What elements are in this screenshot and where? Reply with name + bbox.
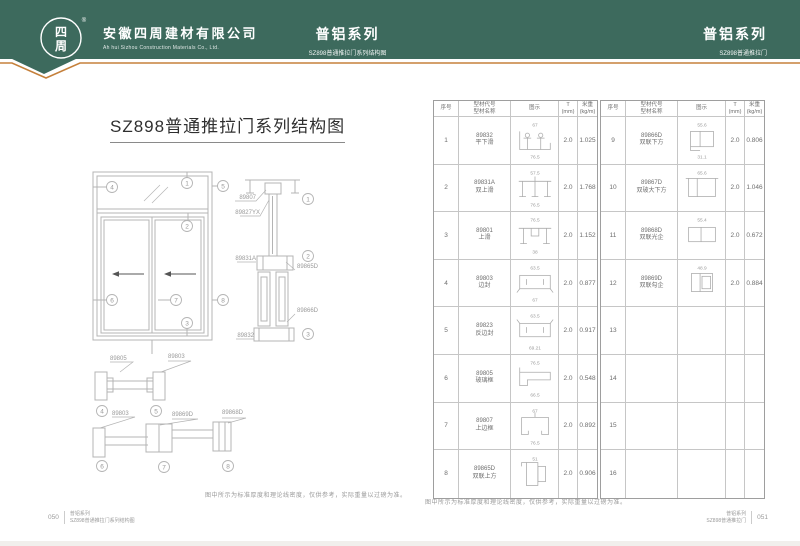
- profile-id-cell: [626, 403, 678, 450]
- part-label: 89868D: [222, 410, 244, 416]
- profile-diagram-cell: 55.631.1: [678, 117, 726, 164]
- svg-text:66.5: 66.5: [530, 393, 540, 399]
- weight-cell: 1.025: [578, 117, 597, 164]
- svg-text:55.6: 55.6: [697, 123, 707, 129]
- svg-text:7: 7: [174, 297, 178, 304]
- profile-code: 89869D: [641, 276, 662, 284]
- weight-cell: [745, 355, 764, 402]
- weight-cell: 0.672: [745, 212, 764, 259]
- svg-text:2: 2: [185, 223, 189, 230]
- row-index: 15: [601, 403, 626, 450]
- left-page-note: 图中所示为标准厚度和理论线密度，仅供参考，实际重量以过磅为准。: [205, 490, 407, 499]
- svg-text:1: 1: [185, 180, 189, 187]
- section-mark: 4: [97, 406, 108, 417]
- col-header-diagram: 图示: [511, 101, 559, 116]
- right-page-note: 图中所示为标准厚度和理论线密度，仅供参考，实际重量以过磅为准。: [425, 497, 627, 506]
- table-row: 689805玻璃框76.566.52.00.548: [434, 355, 597, 403]
- header-series-right: 普铝系列 SZ898普通推拉门: [703, 24, 767, 57]
- svg-text:69.21: 69.21: [529, 345, 541, 351]
- section-mark: 8: [223, 461, 234, 472]
- profile-id-cell: 89807上边框: [459, 403, 511, 450]
- row-index: 13: [601, 307, 626, 354]
- col-header-code: 型材代号型材名称: [626, 101, 678, 116]
- svg-text:5: 5: [154, 408, 158, 415]
- thickness-cell: 2.0: [726, 165, 745, 212]
- svg-text:四: 四: [55, 25, 67, 39]
- weight-cell: 0.877: [578, 260, 597, 307]
- table-row: 16: [601, 450, 764, 498]
- row-index: 10: [601, 165, 626, 212]
- profile-code: 89823: [476, 323, 493, 331]
- row-index: 12: [601, 260, 626, 307]
- profile-code: 89865D: [474, 466, 495, 474]
- footer-divider: [64, 511, 65, 524]
- profile-diagram-cell: 6776.5: [511, 117, 559, 164]
- profile-cross-section: 76.538: [512, 214, 558, 256]
- thickness-cell: [726, 403, 745, 450]
- profile-diagram-cell: 6776.5: [511, 403, 559, 450]
- weight-cell: 0.806: [745, 117, 764, 164]
- slide-arrow-icon: [112, 271, 119, 277]
- profile-diagram-cell: [678, 307, 726, 354]
- profile-code: 89867D: [641, 180, 662, 188]
- profile-code: 89807: [476, 418, 493, 426]
- company-name-en: Ah hui Sizhou Construction Materials Co.…: [103, 45, 258, 51]
- section-mark: 1: [182, 178, 193, 189]
- accent-line: [0, 63, 800, 78]
- thickness-cell: 2.0: [559, 450, 578, 498]
- table-row: 14: [601, 355, 764, 403]
- svg-text:7: 7: [162, 464, 166, 471]
- svg-text:38: 38: [532, 250, 538, 256]
- svg-text:57.5: 57.5: [530, 171, 540, 177]
- series-subtitle-right: SZ898普通推拉门: [703, 48, 767, 57]
- svg-text:3: 3: [306, 331, 310, 338]
- section-mark: 8: [218, 295, 229, 306]
- profile-cross-section: 6776.5: [512, 405, 558, 447]
- row-index: 5: [434, 307, 459, 354]
- svg-text:1: 1: [306, 196, 310, 203]
- table-row: 1089867D双玻大下方65.62.01.046: [601, 165, 764, 213]
- row-index: 2: [434, 165, 459, 212]
- section-mark: 6: [107, 295, 118, 306]
- svg-text:63.5: 63.5: [530, 266, 540, 272]
- weight-cell: 0.917: [578, 307, 597, 354]
- profile-diagram-cell: 63.567: [511, 260, 559, 307]
- profile-name: 边封: [478, 283, 490, 291]
- thickness-cell: 2.0: [559, 212, 578, 259]
- table-row: 15: [601, 403, 764, 451]
- page-title: SZ898普通推拉门系列结构图: [110, 112, 345, 143]
- section-mark: 3: [182, 318, 193, 329]
- profile-cross-section: 76.566.5: [512, 357, 558, 399]
- profile-id-cell: 89831A双上滑: [459, 165, 511, 212]
- registered-mark-icon: ®: [82, 17, 87, 24]
- col-header-weight: 米重(kg/m): [745, 101, 764, 116]
- profile-name: 玻璃框: [475, 378, 493, 386]
- weight-cell: [745, 307, 764, 354]
- table-row: 789807上边框6776.52.00.892: [434, 403, 597, 451]
- profile-diagram-cell: 65.6: [678, 165, 726, 212]
- weight-cell: 0.906: [578, 450, 597, 498]
- footer-divider: [751, 511, 752, 524]
- thickness-cell: 2.0: [559, 260, 578, 307]
- weight-cell: 1.152: [578, 212, 597, 259]
- table-row: 989866D双联下方55.631.12.00.806: [601, 117, 764, 165]
- part-label: 89803: [168, 354, 185, 360]
- thickness-cell: 2.0: [559, 403, 578, 450]
- svg-text:67: 67: [532, 123, 538, 129]
- col-header-diagram: 图示: [678, 101, 726, 116]
- right-page-footer: 普铝系列 SZ898普通推拉门 051: [706, 511, 768, 524]
- svg-text:76.5: 76.5: [530, 203, 540, 209]
- profile-id-cell: 89868D双联光企: [626, 212, 678, 259]
- part-label: 89869D: [172, 412, 194, 418]
- company-block: 安徽四周建材有限公司 Ah hui Sizhou Construction Ma…: [103, 23, 258, 51]
- profile-cross-section: 63.569.21: [512, 310, 558, 352]
- table-row: 189832平下滑6776.52.01.025: [434, 117, 597, 165]
- col-header-thickness: T(mm): [559, 101, 578, 116]
- footer-doc: SZ898普通推拉门系列结构图: [70, 518, 135, 525]
- row-index: 4: [434, 260, 459, 307]
- profile-id-cell: [626, 355, 678, 402]
- part-label: 89866D: [297, 308, 319, 314]
- row-index: 9: [601, 117, 626, 164]
- table-row: 1189868D双联光企55.42.00.672: [601, 212, 764, 260]
- profile-diagram-cell: 48.9: [678, 260, 726, 307]
- svg-text:4: 4: [110, 184, 114, 191]
- row-index: 14: [601, 355, 626, 402]
- weight-cell: [745, 450, 764, 498]
- table-row: 589823反边封63.569.212.00.917: [434, 307, 597, 355]
- profile-name: 双联下方: [639, 140, 663, 148]
- page-number: 050: [48, 514, 59, 521]
- profile-name: 双联勾企: [639, 283, 663, 291]
- profile-id-cell: [626, 450, 678, 498]
- profile-diagram-cell: 76.566.5: [511, 355, 559, 402]
- svg-text:周: 周: [55, 39, 67, 53]
- profile-id-cell: 89867D双玻大下方: [626, 165, 678, 212]
- profile-name: 上滑: [478, 235, 490, 243]
- profile-diagram-cell: 57.576.5: [511, 165, 559, 212]
- section-mark: 2: [182, 221, 193, 232]
- svg-text:76.5: 76.5: [530, 218, 540, 224]
- part-label: 89827YX: [235, 210, 260, 216]
- profile-diagram-cell: 51: [511, 450, 559, 498]
- profile-code: 89831A: [474, 180, 495, 188]
- profile-id-cell: 89832平下滑: [459, 117, 511, 164]
- svg-text:63.5: 63.5: [530, 313, 540, 319]
- profile-name: 双联上方: [472, 474, 496, 482]
- weight-cell: [745, 403, 764, 450]
- section-mark: 7: [171, 295, 182, 306]
- section-mark: 4: [107, 182, 118, 193]
- profile-diagram-cell: [678, 355, 726, 402]
- table-row: 1289869D双联勾企48.92.00.884: [601, 260, 764, 308]
- section-mark: 5: [151, 406, 162, 417]
- left-page-footer: 050 普铝系列 SZ898普通推拉门系列结构图: [48, 511, 135, 524]
- svg-text:4: 4: [100, 408, 104, 415]
- table-header-row: 序号型材代号型材名称图示T(mm)米重(kg/m): [434, 101, 597, 117]
- svg-text:51: 51: [532, 457, 538, 463]
- profile-name: 双上滑: [475, 188, 493, 196]
- thickness-cell: 2.0: [559, 117, 578, 164]
- table-row: 13: [601, 307, 764, 355]
- thickness-cell: [726, 450, 745, 498]
- col-header-weight: 米重(kg/m): [578, 101, 597, 116]
- series-subtitle: SZ898普通推拉门系列结构图: [240, 48, 455, 57]
- table-row: 889865D双联上方512.00.906: [434, 450, 597, 498]
- profile-diagram-cell: 55.4: [678, 212, 726, 259]
- profile-id-cell: 89803边封: [459, 260, 511, 307]
- svg-text:55.4: 55.4: [697, 218, 707, 224]
- svg-text:8: 8: [221, 297, 225, 304]
- svg-text:31.1: 31.1: [697, 155, 707, 161]
- section-mark: 7: [159, 462, 170, 473]
- col-header-thickness: T(mm): [726, 101, 745, 116]
- col-header-no: 序号: [601, 101, 626, 116]
- thickness-cell: [726, 355, 745, 402]
- profile-name: 反边封: [475, 331, 493, 339]
- profile-table-right: 序号型材代号型材名称图示T(mm)米重(kg/m)989866D双联下方55.6…: [600, 100, 765, 499]
- profile-table-left: 序号型材代号型材名称图示T(mm)米重(kg/m)189832平下滑6776.5…: [433, 100, 598, 499]
- profile-id-cell: 89869D双联勾企: [626, 260, 678, 307]
- profile-id-cell: 89823反边封: [459, 307, 511, 354]
- svg-text:76.5: 76.5: [530, 440, 540, 446]
- profile-code: 89803: [476, 276, 493, 284]
- profile-cross-section: 57.576.5: [512, 167, 558, 209]
- weight-cell: 1.046: [745, 165, 764, 212]
- thickness-cell: 2.0: [726, 117, 745, 164]
- svg-text:6: 6: [110, 297, 114, 304]
- svg-text:67: 67: [532, 408, 538, 414]
- profile-id-cell: 89801上滑: [459, 212, 511, 259]
- row-index: 16: [601, 450, 626, 498]
- svg-text:76.5: 76.5: [530, 155, 540, 161]
- svg-text:8: 8: [226, 463, 230, 470]
- svg-text:48.9: 48.9: [697, 266, 707, 272]
- part-label: 89805: [110, 356, 127, 362]
- table-header-row: 序号型材代号型材名称图示T(mm)米重(kg/m): [601, 101, 764, 117]
- profile-name: 双联光企: [639, 235, 663, 243]
- profile-name: 双玻大下方: [636, 188, 666, 196]
- section-mark: 3: [303, 329, 314, 340]
- section-mark: 2: [303, 251, 314, 262]
- page-bottom-edge: [0, 541, 800, 546]
- profile-diagram-cell: 63.569.21: [511, 307, 559, 354]
- door-structure-diagram: 89807 89827YX 89831A 89865D 89866D 89832…: [60, 160, 390, 490]
- svg-text:67: 67: [532, 298, 538, 304]
- svg-text:6: 6: [100, 463, 104, 470]
- profile-cross-section: 48.9: [679, 262, 725, 304]
- slide-arrow-icon: [164, 271, 171, 277]
- profile-cross-section: 51: [512, 453, 558, 495]
- profile-diagram-cell: [678, 450, 726, 498]
- svg-text:65.6: 65.6: [697, 171, 707, 177]
- profile-cross-section: 55.631.1: [679, 119, 725, 161]
- svg-text:5: 5: [221, 183, 225, 190]
- row-index: 8: [434, 450, 459, 498]
- thickness-cell: 2.0: [559, 355, 578, 402]
- profile-diagram-cell: [678, 403, 726, 450]
- svg-text:2: 2: [306, 253, 310, 260]
- section-mark: 1: [303, 194, 314, 205]
- part-label: 89831A: [235, 256, 256, 262]
- thickness-cell: 2.0: [726, 260, 745, 307]
- part-label: 89807: [239, 195, 256, 201]
- thickness-cell: [726, 307, 745, 354]
- svg-text:3: 3: [185, 320, 189, 327]
- weight-cell: 0.548: [578, 355, 597, 402]
- thickness-cell: 2.0: [559, 165, 578, 212]
- profile-id-cell: 89805玻璃框: [459, 355, 511, 402]
- row-index: 6: [434, 355, 459, 402]
- series-title: 普铝系列: [240, 24, 455, 44]
- table-row: 289831A双上滑57.576.52.01.768: [434, 165, 597, 213]
- profile-cross-section: 6776.5: [512, 119, 558, 161]
- part-label: 89803: [112, 411, 129, 417]
- profile-cross-section: 65.6: [679, 167, 725, 209]
- table-row: 389801上滑76.5382.01.152: [434, 212, 597, 260]
- profile-id-cell: [626, 307, 678, 354]
- weight-cell: 1.768: [578, 165, 597, 212]
- section-mark: 5: [218, 181, 229, 192]
- table-row: 489803边封63.5672.00.877: [434, 260, 597, 308]
- thickness-cell: 2.0: [726, 212, 745, 259]
- part-label: 89865D: [297, 264, 319, 270]
- header-series-center: 普铝系列 SZ898普通推拉门系列结构图: [240, 24, 455, 57]
- row-index: 7: [434, 403, 459, 450]
- profile-cross-section: 55.4: [679, 214, 725, 256]
- thickness-cell: 2.0: [559, 307, 578, 354]
- row-index: 11: [601, 212, 626, 259]
- catalog-spread: 四 周 ® 安徽四周建材有限公司 Ah hui Sizhou Construct…: [0, 0, 800, 546]
- profile-id-cell: 89866D双联下方: [626, 117, 678, 164]
- profile-name: 上边框: [475, 426, 493, 434]
- weight-cell: 0.884: [745, 260, 764, 307]
- row-index: 3: [434, 212, 459, 259]
- profile-id-cell: 89865D双联上方: [459, 450, 511, 498]
- col-header-no: 序号: [434, 101, 459, 116]
- row-index: 1: [434, 117, 459, 164]
- weight-cell: 0.892: [578, 403, 597, 450]
- profile-name: 平下滑: [475, 140, 493, 148]
- profile-diagram-cell: 76.538: [511, 212, 559, 259]
- company-name: 安徽四周建材有限公司: [103, 23, 258, 42]
- svg-text:76.5: 76.5: [530, 361, 540, 367]
- part-label: 89832: [237, 333, 254, 339]
- col-header-code: 型材代号型材名称: [459, 101, 511, 116]
- page-number: 051: [757, 514, 768, 521]
- profile-cross-section: 63.567: [512, 262, 558, 304]
- section-mark: 6: [97, 461, 108, 472]
- footer-doc: SZ898普通推拉门: [706, 518, 746, 525]
- series-title-right: 普铝系列: [703, 24, 767, 44]
